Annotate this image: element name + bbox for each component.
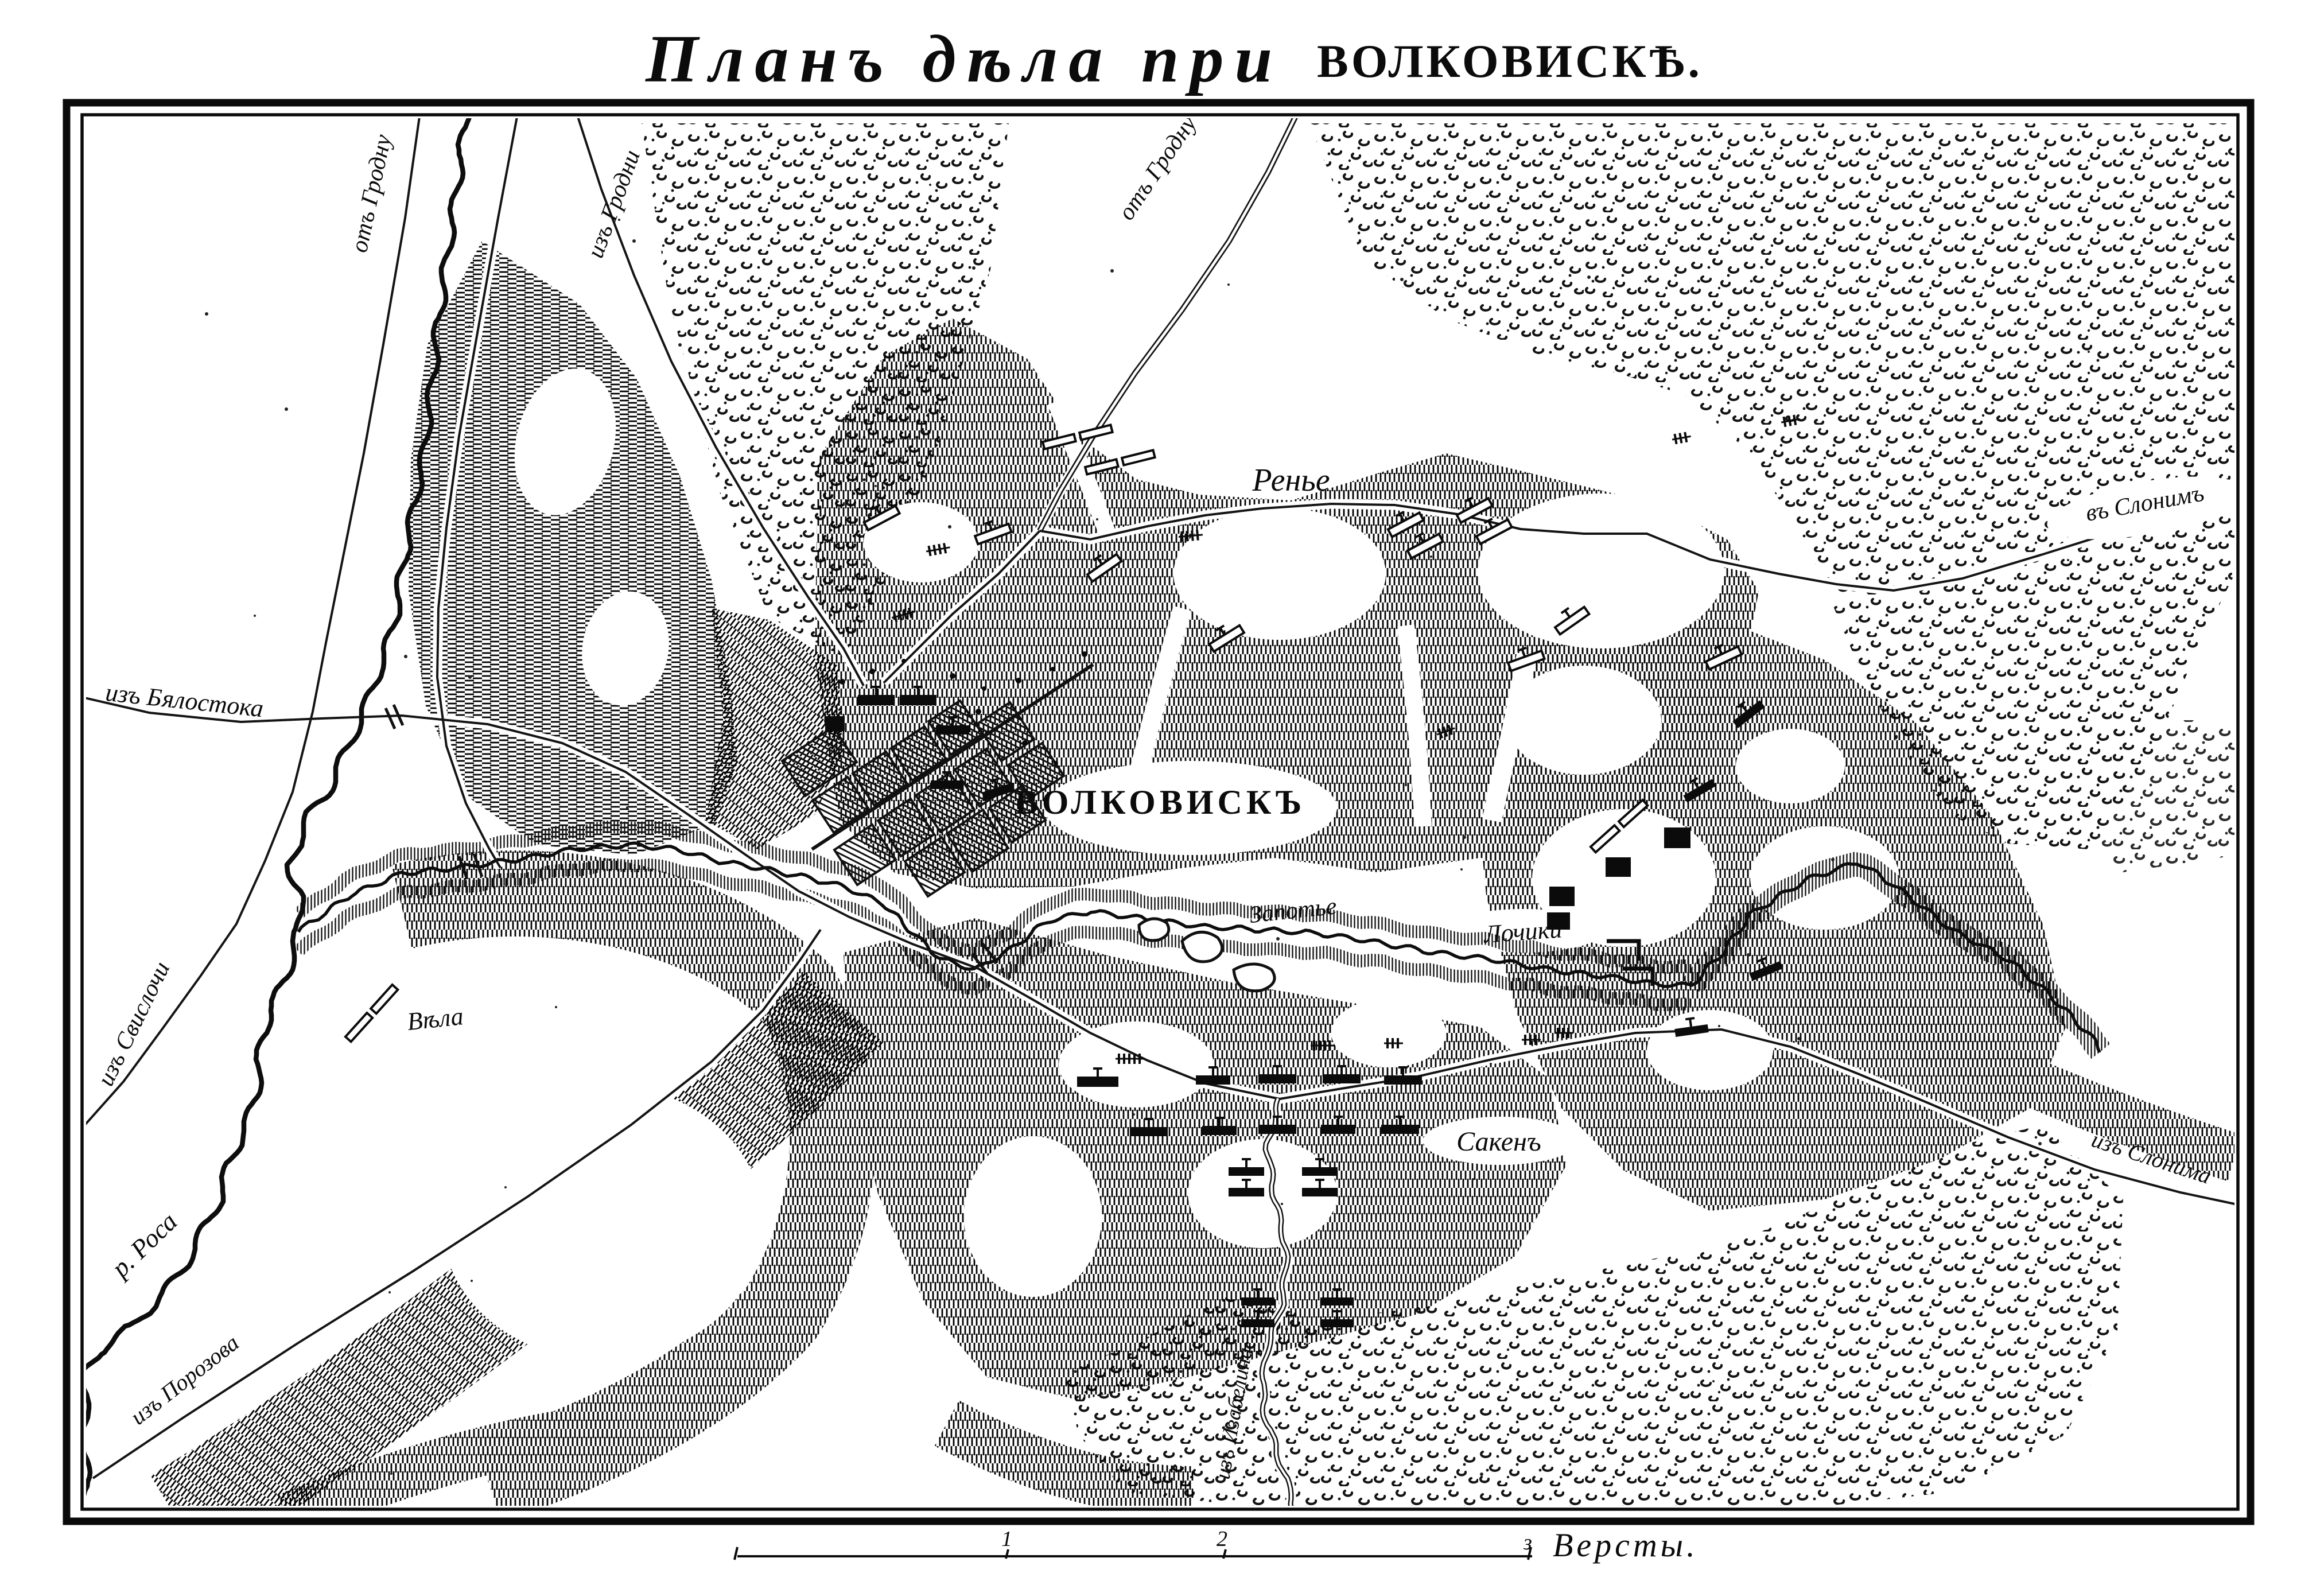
svg-text:2: 2 (1217, 1527, 1227, 1551)
svg-text:з: з (1523, 1530, 1532, 1555)
svg-text:Планъ дѣла при: Планъ дѣла при (645, 21, 1283, 96)
svg-text:ВОЛКОВИСКЪ: ВОЛКОВИСКЪ (1015, 783, 1306, 821)
svg-text:Ренье: Ренье (1252, 463, 1330, 498)
svg-text:Лочики: Лочики (1482, 915, 1563, 949)
svg-text:1: 1 (1001, 1527, 1012, 1551)
svg-text:Вѣла: Вѣла (406, 1002, 465, 1036)
svg-text:Сакенъ: Сакенъ (1456, 1126, 1541, 1157)
svg-text:Версты.: Версты. (1553, 1526, 1699, 1564)
svg-text:ВОЛКОВИСКѢ.: ВОЛКОВИСКѢ. (1317, 35, 1703, 87)
